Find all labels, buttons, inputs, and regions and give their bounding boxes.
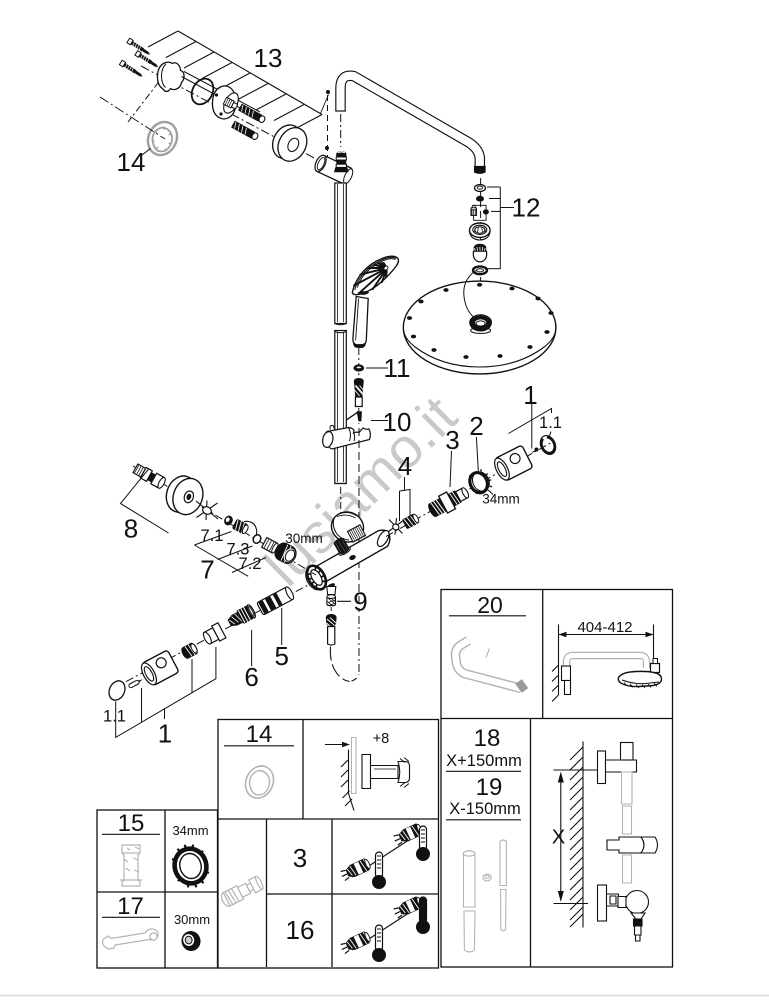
svg-text:12: 12 <box>512 193 541 223</box>
svg-text:20: 20 <box>477 592 503 618</box>
svg-text:14: 14 <box>246 721 273 748</box>
svg-text:11: 11 <box>384 353 411 383</box>
svg-text:34mm: 34mm <box>172 823 208 838</box>
svg-text:10: 10 <box>383 407 412 437</box>
svg-text:34mm: 34mm <box>482 492 520 507</box>
svg-text:9: 9 <box>353 587 367 617</box>
svg-text:2: 2 <box>469 411 483 441</box>
svg-text:1: 1 <box>523 380 537 410</box>
svg-text:30mm: 30mm <box>285 531 323 546</box>
svg-text:18: 18 <box>474 725 501 752</box>
svg-text:30mm: 30mm <box>174 912 210 927</box>
svg-text:3: 3 <box>293 843 307 873</box>
svg-text:17: 17 <box>117 893 144 920</box>
svg-text:19: 19 <box>476 774 503 801</box>
svg-text:6: 6 <box>244 662 258 692</box>
svg-text:14: 14 <box>117 147 146 177</box>
svg-text:3: 3 <box>445 425 459 455</box>
svg-text:1: 1 <box>158 719 172 749</box>
svg-text:1.1: 1.1 <box>539 414 562 432</box>
svg-text:+8: +8 <box>373 731 390 747</box>
svg-text:8: 8 <box>124 514 138 544</box>
svg-text:16: 16 <box>286 915 315 945</box>
svg-text:X: X <box>552 827 565 849</box>
svg-text:X-150mm: X-150mm <box>449 800 521 818</box>
svg-text:7.2: 7.2 <box>239 555 262 573</box>
svg-text:404-412: 404-412 <box>577 619 632 636</box>
svg-text:5: 5 <box>274 641 288 671</box>
svg-text:7: 7 <box>200 555 214 585</box>
svg-text:4: 4 <box>398 451 412 481</box>
svg-text:X+150mm: X+150mm <box>446 752 522 770</box>
svg-text:13: 13 <box>254 43 283 73</box>
svg-text:1.1: 1.1 <box>103 708 126 726</box>
svg-text:15: 15 <box>118 810 145 837</box>
